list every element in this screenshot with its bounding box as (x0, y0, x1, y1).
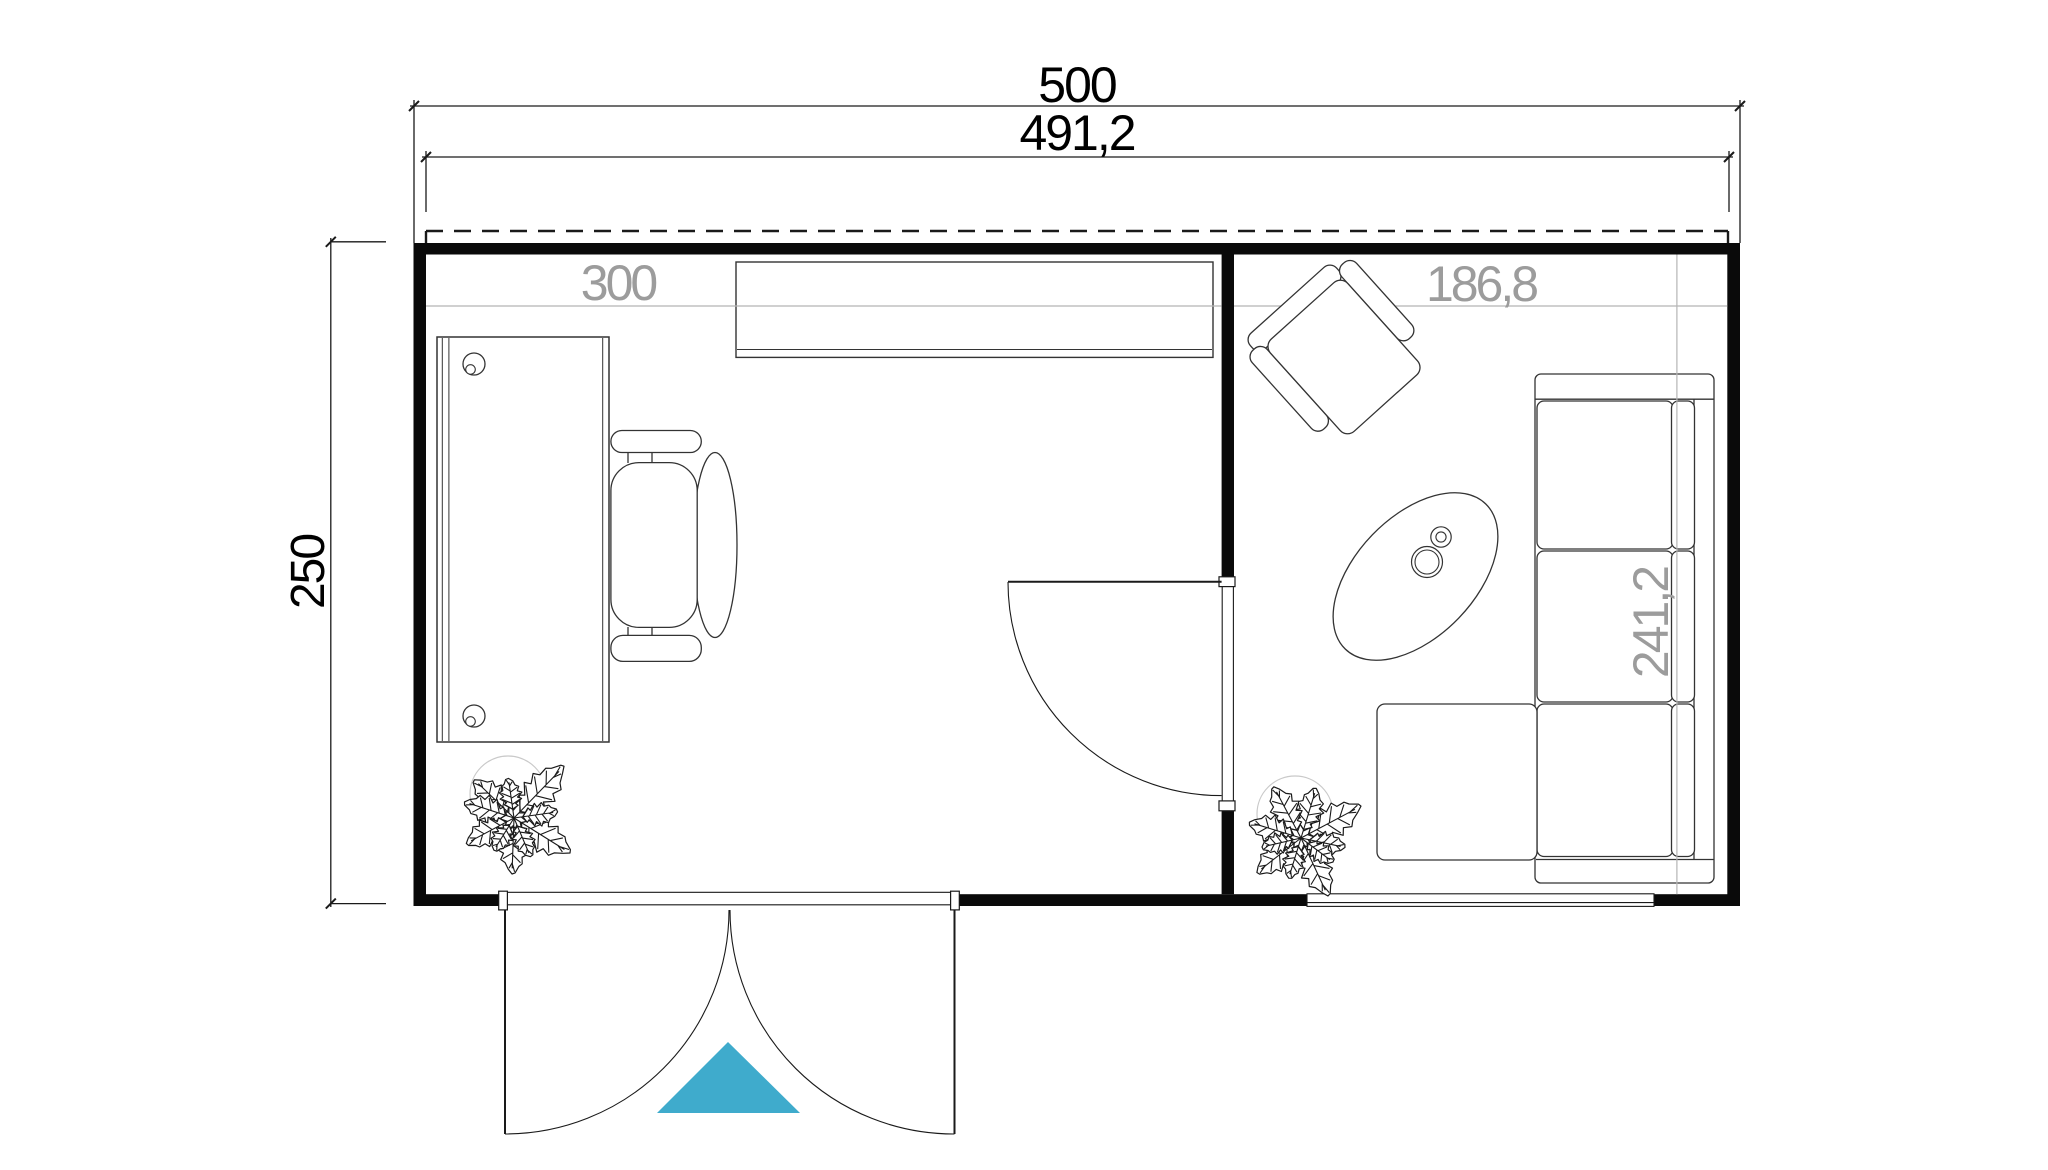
svg-text:241,2: 241,2 (1623, 567, 1679, 678)
svg-text:186,8: 186,8 (1426, 256, 1537, 312)
svg-text:300: 300 (581, 255, 657, 311)
svg-text:491,2: 491,2 (1019, 105, 1134, 161)
svg-text:250: 250 (282, 535, 335, 609)
